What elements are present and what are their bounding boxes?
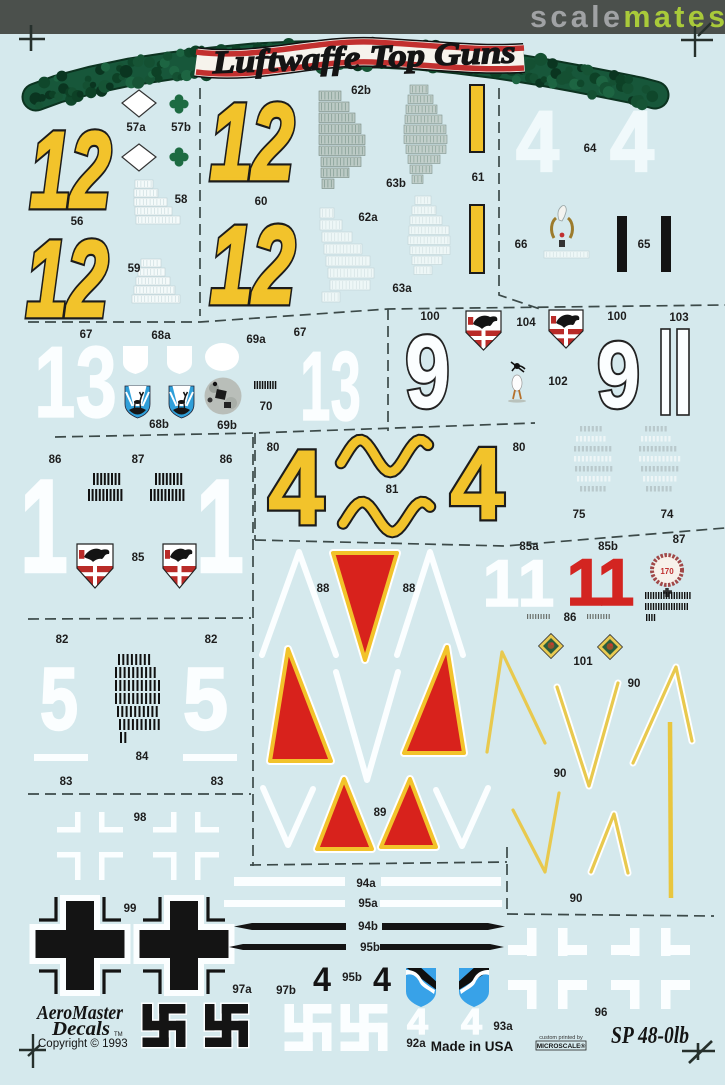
svg-text:custom printed by: custom printed by <box>539 1035 583 1041</box>
svg-text:75: 75 <box>573 509 586 521</box>
svg-text:69b: 69b <box>217 420 237 432</box>
svg-text:74: 74 <box>661 509 674 521</box>
svg-text:4: 4 <box>373 961 391 999</box>
svg-text:MICROSCALE®: MICROSCALE® <box>537 1042 586 1050</box>
svg-text:57a: 57a <box>126 122 146 134</box>
svg-text:93a: 93a <box>493 1021 513 1033</box>
svg-text:59: 59 <box>128 263 141 275</box>
svg-text:82: 82 <box>205 634 218 646</box>
svg-text:12: 12 <box>210 81 294 202</box>
svg-text:90: 90 <box>554 768 567 780</box>
svg-text:13: 13 <box>300 331 361 441</box>
svg-text:97a: 97a <box>232 984 252 996</box>
svg-text:1: 1 <box>598 545 635 619</box>
svg-text:69a: 69a <box>246 334 266 346</box>
svg-text:95a: 95a <box>358 898 378 910</box>
svg-text:95b: 95b <box>360 942 380 954</box>
svg-text:94a: 94a <box>356 878 376 890</box>
svg-text:94b: 94b <box>358 921 378 933</box>
svg-text:13: 13 <box>34 327 117 439</box>
svg-text:65: 65 <box>638 239 651 251</box>
svg-text:62a: 62a <box>358 212 378 224</box>
svg-text:62b: 62b <box>351 85 371 97</box>
svg-text:Copyright © 1993: Copyright © 1993 <box>38 1038 128 1050</box>
svg-text:1: 1 <box>483 546 520 620</box>
svg-text:64: 64 <box>584 143 597 155</box>
svg-text:82: 82 <box>56 634 69 646</box>
svg-text:66: 66 <box>515 239 528 251</box>
svg-text:103: 103 <box>669 312 688 324</box>
svg-text:4: 4 <box>461 1001 482 1042</box>
svg-text:88: 88 <box>317 583 330 595</box>
svg-text:4: 4 <box>313 961 331 999</box>
svg-text:98: 98 <box>134 812 147 824</box>
svg-text:4: 4 <box>516 94 559 190</box>
svg-text:5: 5 <box>40 649 78 748</box>
svg-text:Made in USA: Made in USA <box>431 1039 514 1054</box>
svg-text:5: 5 <box>183 649 228 748</box>
svg-text:1: 1 <box>518 546 555 620</box>
svg-text:87: 87 <box>132 454 145 466</box>
svg-text:Decals: Decals <box>51 1018 110 1040</box>
svg-text:4: 4 <box>268 429 324 547</box>
svg-text:9: 9 <box>405 315 450 429</box>
svg-text:70: 70 <box>260 401 273 413</box>
svg-text:83: 83 <box>60 776 73 788</box>
svg-text:92a: 92a <box>406 1038 426 1050</box>
svg-text:1: 1 <box>196 453 244 601</box>
svg-text:68b: 68b <box>149 419 169 431</box>
svg-text:102: 102 <box>548 376 567 388</box>
svg-text:57b: 57b <box>171 122 191 134</box>
svg-text:9: 9 <box>597 323 640 427</box>
svg-text:4: 4 <box>450 427 504 541</box>
svg-text:86: 86 <box>564 612 577 624</box>
svg-text:170: 170 <box>660 567 674 576</box>
svg-text:4: 4 <box>407 1001 428 1042</box>
svg-text:4: 4 <box>610 94 654 190</box>
svg-text:90: 90 <box>628 678 641 690</box>
svg-text:100: 100 <box>607 311 626 323</box>
svg-text:104: 104 <box>516 317 536 329</box>
svg-text:84: 84 <box>136 751 149 763</box>
svg-text:83: 83 <box>211 776 224 788</box>
svg-text:101: 101 <box>573 656 593 668</box>
svg-text:99: 99 <box>124 903 137 915</box>
svg-text:1: 1 <box>20 453 68 601</box>
svg-text:12: 12 <box>210 204 295 327</box>
svg-text:81: 81 <box>386 484 399 496</box>
svg-text:80: 80 <box>513 442 526 454</box>
svg-text:63a: 63a <box>392 283 412 295</box>
svg-text:12: 12 <box>30 109 111 230</box>
svg-text:90: 90 <box>570 893 583 905</box>
svg-text:58: 58 <box>175 194 188 206</box>
svg-text:87: 87 <box>673 534 686 546</box>
svg-text:96: 96 <box>595 1007 608 1019</box>
svg-text:63b: 63b <box>386 178 406 190</box>
svg-text:12: 12 <box>26 218 108 339</box>
svg-text:SP 48-0lb: SP 48-0lb <box>611 1023 689 1049</box>
svg-text:97b: 97b <box>276 985 296 997</box>
svg-text:85: 85 <box>132 552 145 564</box>
svg-text:68a: 68a <box>151 330 171 342</box>
svg-text:61: 61 <box>472 172 485 184</box>
svg-text:95b: 95b <box>342 972 362 984</box>
svg-text:89: 89 <box>374 807 387 819</box>
